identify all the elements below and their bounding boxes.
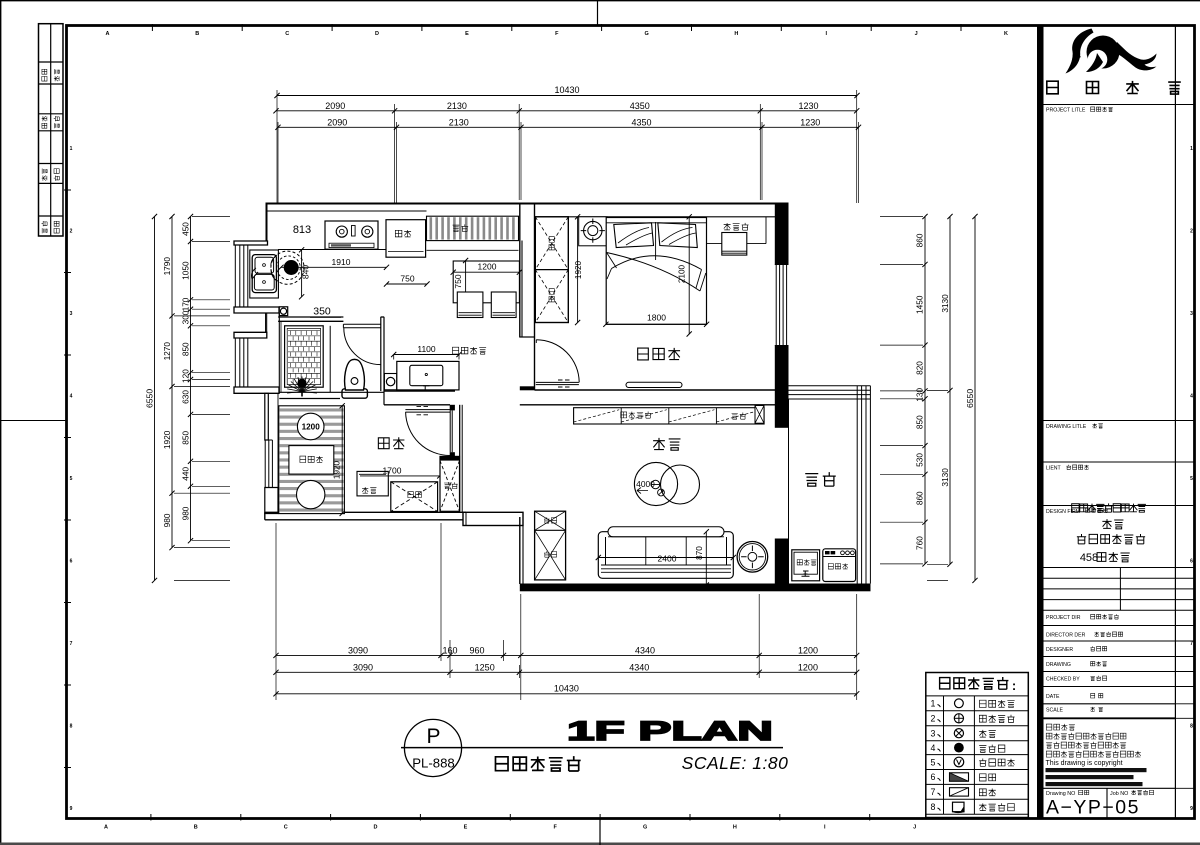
svg-text:813: 813 [293, 224, 311, 236]
svg-text:750: 750 [400, 274, 414, 284]
svg-text:I: I [826, 31, 828, 37]
svg-text:I: I [824, 825, 826, 831]
svg-text:1270: 1270 [162, 342, 172, 361]
svg-text:F: F [555, 31, 559, 37]
svg-text:1050: 1050 [180, 261, 190, 280]
svg-text:D: D [375, 31, 379, 37]
svg-text:3130: 3130 [940, 294, 950, 313]
svg-text:PROJECT LITLE: PROJECT LITLE [1046, 108, 1086, 114]
svg-text:B: B [194, 825, 198, 831]
svg-text:6: 6 [931, 772, 936, 782]
svg-text:D: D [374, 825, 378, 831]
svg-text:760: 760 [915, 536, 925, 550]
svg-text:B: B [195, 31, 199, 37]
svg-text:630: 630 [180, 390, 190, 404]
svg-text:1790: 1790 [162, 257, 172, 276]
svg-text:P: P [426, 725, 440, 748]
svg-text:850: 850 [180, 431, 190, 445]
svg-text:K: K [1004, 31, 1008, 37]
svg-text:LIENT: LIENT [1046, 466, 1062, 472]
svg-text:E: E [465, 31, 469, 37]
svg-text:PROJECT DIR: PROJECT DIR [1046, 615, 1081, 621]
svg-text:4: 4 [1190, 394, 1193, 400]
svg-text:DRAWING: DRAWING [1046, 662, 1071, 668]
svg-text:458: 458 [1080, 552, 1098, 564]
svg-text:980: 980 [180, 506, 190, 520]
svg-text:1800: 1800 [647, 313, 666, 323]
svg-text:DRAWING LITLE: DRAWING LITLE [1046, 424, 1087, 430]
svg-text:1910: 1910 [332, 257, 351, 267]
svg-text:450: 450 [180, 222, 190, 236]
svg-text:8: 8 [1190, 724, 1193, 730]
svg-text:1230: 1230 [800, 117, 820, 127]
svg-text:1250: 1250 [475, 662, 495, 672]
svg-text:2130: 2130 [449, 117, 469, 127]
svg-text:1920: 1920 [162, 430, 172, 449]
svg-text:860: 860 [915, 491, 925, 505]
svg-text:H: H [734, 31, 738, 37]
svg-text:2090: 2090 [325, 101, 345, 111]
svg-text:1: 1 [1190, 146, 1193, 152]
svg-text:4: 4 [931, 743, 936, 753]
svg-text:8: 8 [70, 724, 73, 730]
svg-text:1: 1 [931, 699, 936, 709]
svg-text:850: 850 [180, 342, 190, 356]
svg-text:980: 980 [162, 513, 172, 527]
svg-text:9: 9 [70, 806, 73, 812]
svg-text:1200: 1200 [302, 423, 321, 432]
svg-text:J: J [913, 825, 916, 831]
svg-text:3: 3 [1190, 311, 1193, 317]
svg-text:7: 7 [931, 787, 936, 797]
svg-text:7: 7 [70, 641, 73, 647]
svg-text:1100: 1100 [417, 344, 436, 354]
svg-text:6: 6 [1190, 559, 1193, 565]
svg-text:3130: 3130 [940, 468, 950, 487]
svg-text:4340: 4340 [635, 645, 655, 655]
svg-text:1: 1 [70, 146, 73, 152]
svg-text:A: A [104, 825, 108, 831]
svg-text:2: 2 [70, 229, 73, 235]
svg-text:A−YP−05: A−YP−05 [1046, 797, 1140, 819]
svg-text:CHECKED BY: CHECKED BY [1046, 677, 1080, 683]
svg-text:DESIGNER: DESIGNER [1046, 647, 1073, 653]
svg-text:1920: 1920 [333, 460, 342, 479]
svg-text:G: G [643, 825, 647, 831]
svg-text:2: 2 [931, 714, 936, 724]
svg-text:850: 850 [915, 415, 925, 429]
svg-text:2: 2 [1190, 229, 1193, 235]
svg-text:3090: 3090 [348, 645, 368, 655]
svg-text:9: 9 [1190, 806, 1193, 812]
svg-text:SCALE: 1:80: SCALE: 1:80 [682, 753, 789, 773]
svg-text:A: A [106, 31, 110, 37]
svg-text:6550: 6550 [144, 389, 154, 408]
svg-text:1200: 1200 [478, 262, 497, 272]
svg-text:10430: 10430 [554, 85, 579, 95]
svg-text:130: 130 [915, 388, 925, 402]
svg-text:6: 6 [70, 559, 73, 565]
svg-text:7: 7 [1190, 641, 1193, 647]
svg-text:10430: 10430 [554, 683, 579, 693]
svg-text:3: 3 [931, 728, 936, 738]
svg-text:1230: 1230 [798, 101, 818, 111]
svg-text:F: F [554, 825, 558, 831]
svg-text:170: 170 [180, 297, 190, 311]
svg-text:1700: 1700 [383, 465, 402, 475]
svg-text:4: 4 [70, 394, 73, 400]
svg-text:1200: 1200 [798, 645, 818, 655]
svg-text:4340: 4340 [629, 662, 649, 672]
svg-text:120: 120 [180, 369, 190, 383]
svg-text:J: J [915, 31, 918, 37]
svg-text:C: C [284, 825, 288, 831]
svg-text::: : [1012, 678, 1016, 693]
svg-text:1450: 1450 [915, 295, 925, 314]
svg-text:SCALE: SCALE [1046, 708, 1064, 714]
svg-text:3: 3 [70, 311, 73, 317]
svg-text:350: 350 [313, 306, 331, 318]
svg-text:6550: 6550 [965, 389, 975, 408]
svg-text:H: H [733, 825, 737, 831]
svg-text:4350: 4350 [630, 101, 650, 111]
svg-text:4350: 4350 [631, 117, 651, 127]
svg-text:960: 960 [469, 645, 484, 655]
svg-text:860: 860 [915, 233, 925, 247]
svg-text:440: 440 [180, 466, 190, 480]
svg-text:2090: 2090 [327, 117, 347, 127]
svg-text:5: 5 [70, 476, 73, 482]
svg-text:840: 840 [301, 265, 311, 279]
svg-text:2400: 2400 [658, 554, 677, 564]
svg-text:1200: 1200 [798, 662, 818, 672]
svg-text:820: 820 [915, 361, 925, 375]
svg-text:PL-888: PL-888 [412, 756, 455, 771]
svg-text:1920: 1920 [574, 260, 583, 279]
svg-text:300: 300 [180, 310, 190, 324]
svg-text:G: G [644, 31, 648, 37]
svg-text:870: 870 [695, 546, 704, 560]
svg-text:E: E [464, 825, 468, 831]
svg-text:5: 5 [1190, 476, 1193, 482]
svg-text:3090: 3090 [353, 662, 373, 672]
svg-text:2130: 2130 [447, 101, 467, 111]
svg-text:2100: 2100 [678, 264, 687, 283]
svg-text:DATE: DATE [1046, 694, 1060, 700]
svg-text:750: 750 [453, 274, 463, 288]
svg-text:This drawing is copyright: This drawing is copyright [1046, 760, 1123, 767]
svg-text:530: 530 [915, 453, 925, 467]
svg-text:1F PLAN: 1F PLAN [567, 716, 773, 746]
svg-text:5: 5 [931, 757, 936, 767]
svg-text:C: C [285, 31, 289, 37]
svg-text:8: 8 [931, 802, 936, 812]
svg-text:DIRECTOR DER: DIRECTOR DER [1046, 633, 1086, 639]
